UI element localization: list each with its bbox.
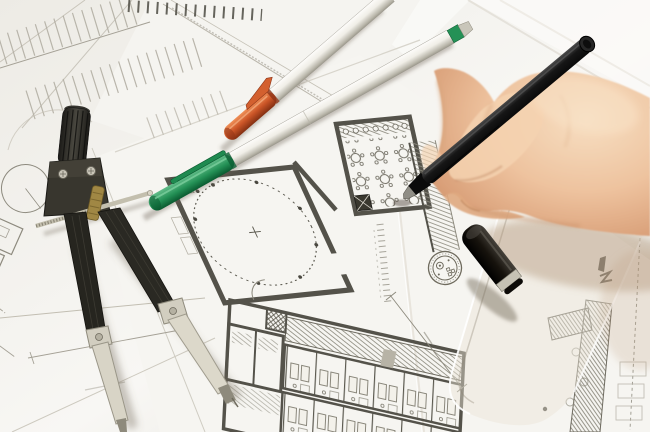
ruler-pivot-dot <box>543 407 547 411</box>
photo-architect-desk <box>0 0 650 432</box>
photo-canvas <box>0 0 650 432</box>
